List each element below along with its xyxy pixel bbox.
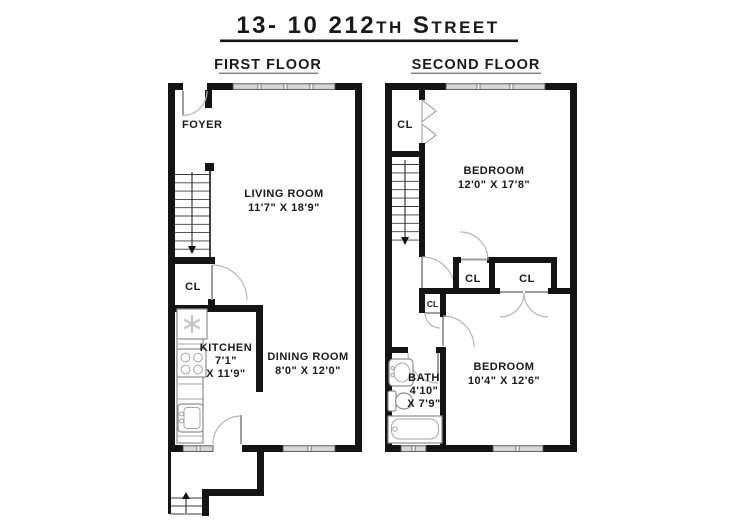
refrigerator	[177, 309, 207, 339]
closet-row-walls	[419, 257, 570, 294]
bedroom1-closet: CL	[460, 232, 488, 285]
kitchen-label: KITCHEN 7'1" X 11'9"	[200, 342, 252, 380]
floor-plan-page: 13- 10 212th Street FIRST FLOOR SECOND F…	[0, 0, 736, 520]
plan-header: 13- 10 212th Street FIRST FLOOR SECOND F…	[214, 12, 541, 74]
svg-text:10'4" X 12'6": 10'4" X 12'6"	[468, 375, 540, 387]
bathtub	[388, 416, 442, 443]
foyer-label: FOYER	[182, 119, 222, 131]
svg-text:7'1": 7'1"	[215, 355, 237, 367]
svg-text:12'0" X 17'8": 12'0" X 17'8"	[458, 179, 530, 191]
svg-text:8'0" X 12'0": 8'0" X 12'0"	[275, 365, 341, 377]
svg-text:DINING ROOM: DINING ROOM	[267, 351, 348, 363]
svg-text:11'7" X 18'9": 11'7" X 18'9"	[248, 202, 320, 214]
first-floor-underline	[219, 73, 318, 75]
dining-room-label: DINING ROOM 8'0" X 12'0"	[267, 351, 348, 377]
closet-label: CL	[397, 119, 413, 131]
window	[283, 446, 335, 452]
bathroom: BATH 4'10" X 7'9"	[385, 347, 446, 443]
svg-text:BEDROOM: BEDROOM	[464, 165, 525, 177]
bedroom1-label: BEDROOM 12'0" X 17'8"	[458, 165, 530, 191]
bedroom2-closet: CL	[500, 273, 548, 317]
closet-label: CL	[427, 299, 438, 309]
stair-hall-wall	[419, 143, 425, 257]
floor-plan-drawing: 13- 10 212th Street FIRST FLOOR SECOND F…	[0, 0, 736, 520]
first-floor-plan: CL	[168, 83, 362, 516]
porch-up-arrow	[182, 492, 190, 513]
svg-text:X 7'9": X 7'9"	[407, 398, 440, 410]
svg-text:LIVING ROOM: LIVING ROOM	[244, 188, 323, 200]
second-floor-underline	[411, 73, 541, 75]
living-room-label: LIVING ROOM 11'7" X 18'9"	[244, 188, 323, 214]
window	[233, 84, 335, 90]
first-floor-closet: CL	[185, 265, 247, 306]
hall-closet: CL	[419, 294, 446, 328]
front-door	[183, 91, 207, 116]
stairs-down-arrow	[188, 172, 196, 254]
first-floor-windows	[183, 84, 335, 452]
window	[493, 446, 543, 452]
second-floor-label: SECOND FLOOR	[412, 57, 541, 73]
first-floor-stairs	[175, 163, 215, 264]
first-floor-label: FIRST FLOOR	[214, 57, 322, 73]
svg-text:4'10": 4'10"	[410, 385, 439, 397]
svg-text:KITCHEN: KITCHEN	[200, 342, 252, 354]
window	[401, 446, 426, 452]
kitchen-exterior-door	[213, 415, 241, 444]
bedroom2-label: BEDROOM 10'4" X 12'6"	[468, 361, 540, 387]
closet-label: CL	[519, 273, 535, 285]
closet-label: CL	[465, 273, 481, 285]
svg-text:X 11'9": X 11'9"	[206, 368, 245, 380]
title-underline	[220, 40, 518, 43]
second-floor-plan: CL	[385, 83, 577, 452]
svg-text:BEDROOM: BEDROOM	[474, 361, 535, 373]
porch-extension	[168, 452, 264, 516]
window	[183, 446, 213, 452]
bath-label: BATH 4'10" X 7'9"	[407, 372, 440, 410]
svg-text:BATH: BATH	[408, 372, 440, 384]
bedroom1-door	[422, 257, 455, 290]
closet-label: CL	[185, 281, 201, 293]
plan-title: 13- 10 212th Street	[236, 12, 499, 39]
second-floor-top-closet: CL	[385, 90, 436, 157]
second-floor-stairs	[392, 160, 419, 245]
kitchen-sink	[178, 404, 203, 432]
window	[446, 84, 545, 90]
